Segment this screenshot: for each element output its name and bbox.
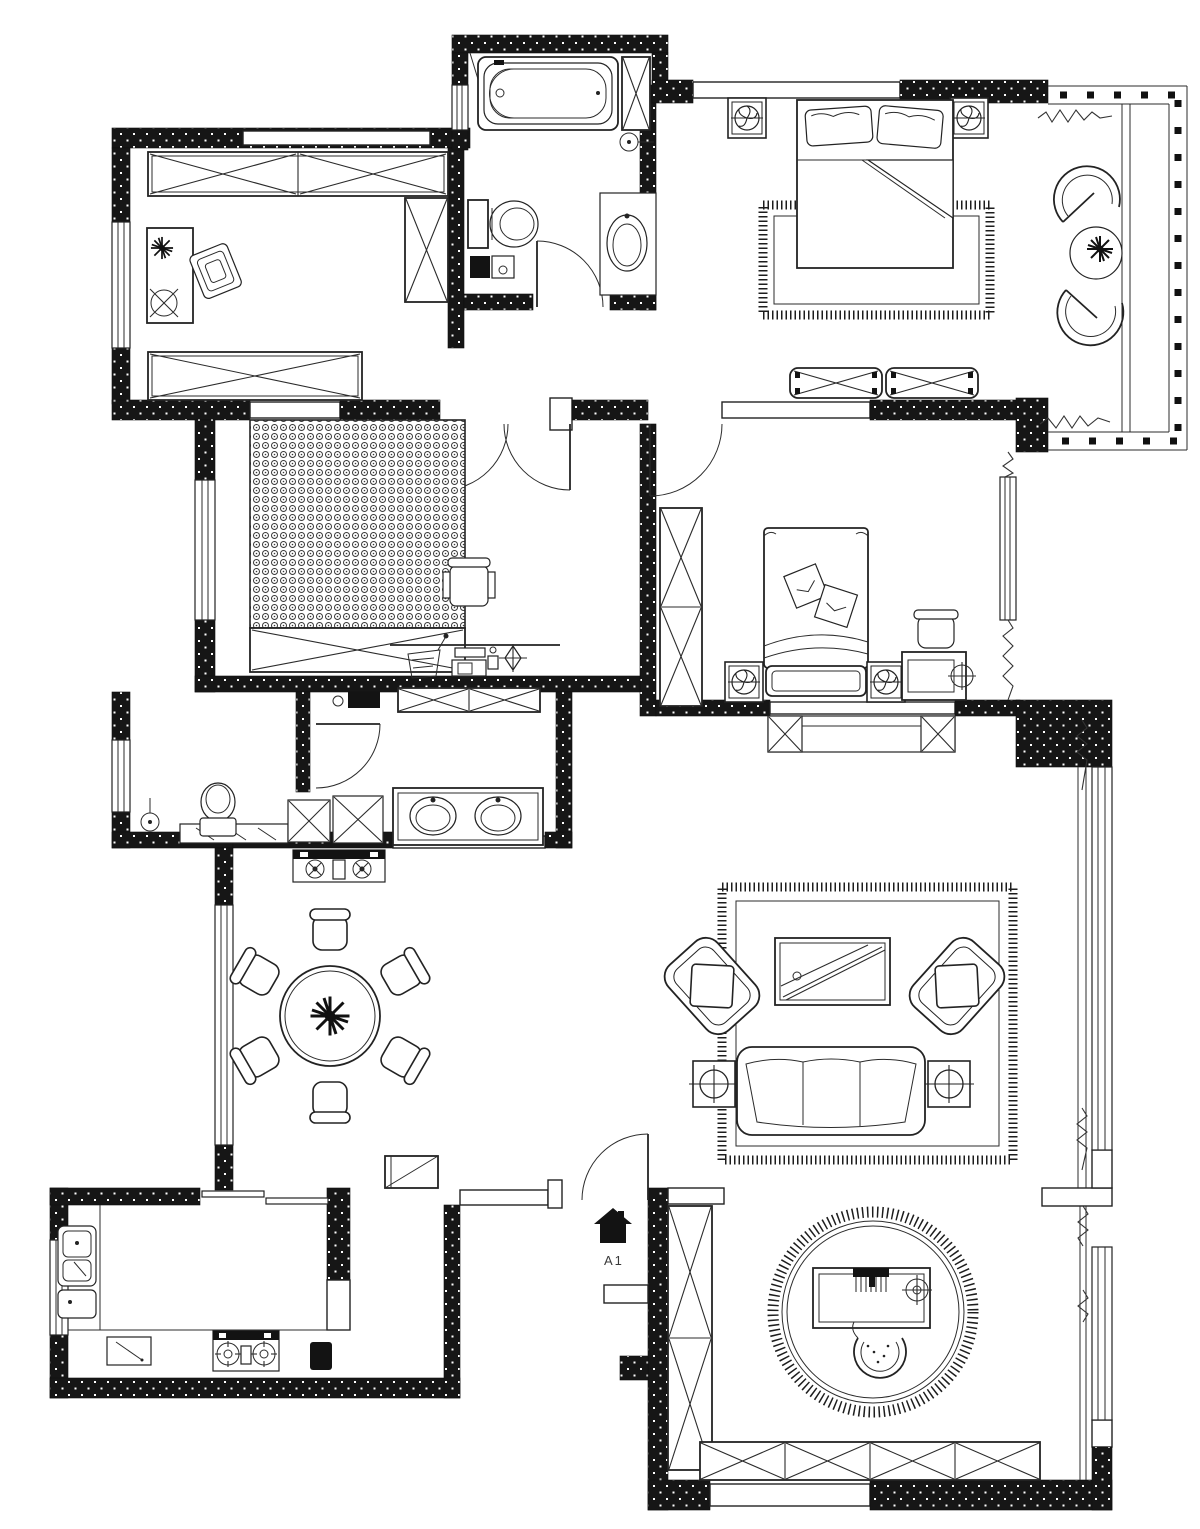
entrance-door-arc-icon (582, 1134, 648, 1200)
dining-room-group (228, 850, 432, 1123)
cloakroom-window-icon (195, 480, 215, 620)
kitchen-sliding-door-icon (202, 1191, 328, 1204)
balcony-chair-icon (1054, 166, 1120, 222)
study-window-icon (112, 222, 130, 348)
entrance-label: A1 (604, 1253, 624, 1268)
wardrobe-icon (660, 508, 702, 706)
bed-bench2-icon (766, 666, 866, 696)
toilet-icon (200, 783, 236, 836)
utility-window-icon (112, 740, 130, 812)
living-window-icon (1092, 767, 1112, 1150)
bay-window-icon (768, 716, 955, 752)
side-table-icon (689, 1061, 739, 1107)
entrance-house-icon (594, 1208, 632, 1243)
stool-icon (853, 1322, 906, 1378)
bedroom-door-arc-icon (650, 424, 722, 496)
dining-table-icon (228, 909, 432, 1123)
bedroom2-window-icon (1000, 477, 1016, 620)
nightstand-fan-icon (725, 662, 763, 702)
hall-cabinet-icon (398, 688, 540, 712)
desk-chair-icon (914, 610, 958, 648)
piano-icon (813, 1268, 932, 1328)
second-bathroom-group (141, 688, 543, 845)
low-cabinet-icon (700, 1442, 1040, 1480)
bathtub-icon (478, 57, 618, 130)
compass-icon (499, 644, 527, 672)
master-bathroom-group (468, 57, 656, 295)
washing-machine-icon (333, 796, 383, 843)
study-room-group (147, 152, 448, 400)
nightstand-fan-icon (867, 662, 905, 702)
corridor-chair-icon (443, 558, 495, 606)
bed-bench-icon (790, 368, 978, 398)
armchair-icon (658, 931, 766, 1041)
double-sink-icon (393, 788, 543, 845)
vanity-sink-icon (600, 193, 656, 295)
nightstand-fan-icon (728, 98, 766, 138)
cloakroom-cabinet-icon (250, 628, 465, 672)
study-low-cabinet-icon (148, 352, 362, 400)
corner-cabinet-icon (310, 1342, 332, 1370)
tub-side-cabinet-icon (622, 57, 650, 130)
sideboard-stove-icon (293, 850, 385, 882)
floor-drain-icon (141, 798, 159, 831)
sofa-icon (737, 1047, 925, 1135)
balcony-chair-icon (1057, 290, 1123, 345)
balcony-table-icon (1070, 227, 1122, 279)
study-chair-icon (188, 242, 242, 300)
bed-single-icon (764, 528, 868, 668)
bed-double-icon (797, 100, 953, 268)
desk-icon (902, 610, 976, 700)
washing-box-icon (470, 256, 514, 278)
cabinet-column-icon (405, 198, 448, 302)
piano-room-group (668, 1206, 1040, 1480)
stove-icon (213, 1331, 279, 1371)
floor-plan-page: A1 (0, 0, 1200, 1529)
living-room-group (658, 887, 1013, 1160)
bathroom2-door-arc-icon (316, 724, 380, 788)
side-table-icon (924, 1061, 974, 1107)
tall-wardrobe-icon (668, 1206, 712, 1470)
cutting-board-icon (107, 1337, 151, 1365)
floor-plan-svg: A1 (0, 0, 1200, 1529)
mesh-area-icon (250, 420, 465, 628)
desk-icon (147, 228, 193, 323)
toilet-icon (468, 200, 538, 248)
bathroom-window-icon (452, 85, 468, 130)
shower-tray-icon (288, 800, 330, 842)
piano-window-icon (1092, 1247, 1112, 1420)
dining-window-icon (215, 905, 233, 1145)
entrance-marker: A1 (594, 1208, 632, 1268)
fridge-icon (385, 1156, 438, 1188)
master-bedroom-group (728, 98, 1123, 398)
kitchen-sink-icon (58, 1226, 96, 1318)
tv-icon (775, 938, 890, 1005)
nightstand-fan-icon (950, 98, 988, 138)
wardrobe-icon (148, 152, 448, 196)
armchair-icon (903, 931, 1011, 1041)
bathroom-door-arc-icon (537, 241, 603, 307)
